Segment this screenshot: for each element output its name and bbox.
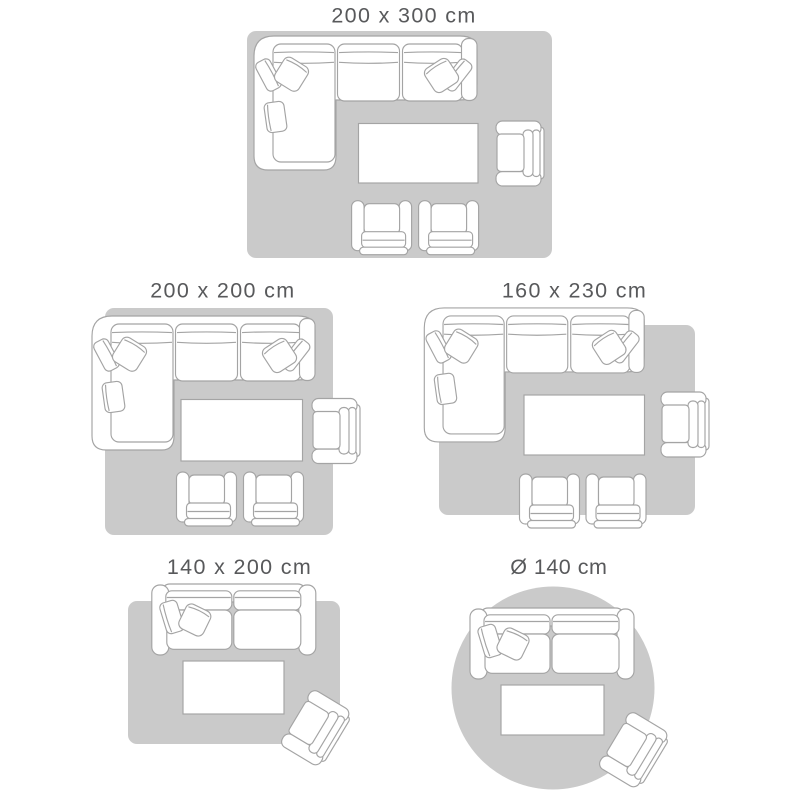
- svg-text:Ø 140 cm: Ø 140 cm: [510, 555, 607, 579]
- svg-text:200 x 300 cm: 200 x 300 cm: [331, 3, 476, 27]
- svg-text:140 x 200 cm: 140 x 200 cm: [167, 555, 312, 579]
- svg-text:200 x 200 cm: 200 x 200 cm: [150, 278, 295, 302]
- svg-text:160 x 230 cm: 160 x 230 cm: [502, 278, 647, 302]
